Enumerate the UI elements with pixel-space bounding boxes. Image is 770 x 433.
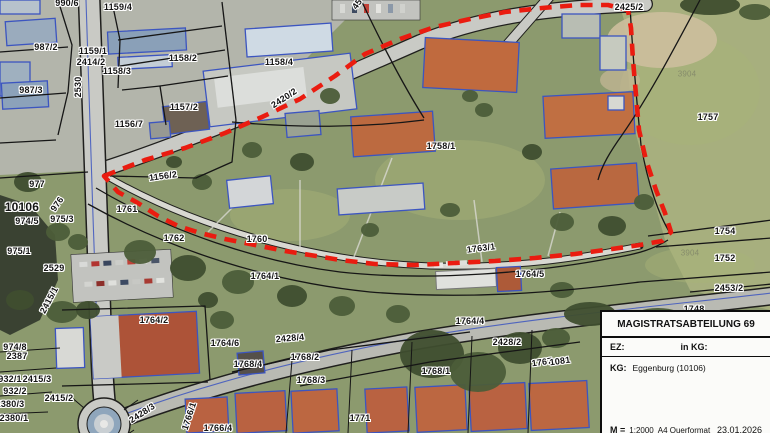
- kg-label: KG:: [610, 363, 627, 373]
- ez-label: EZ:: [610, 342, 625, 352]
- info-box: MAGISTRATSABTEILUNG 69 EZ: in KG: KG:Egg…: [600, 310, 770, 433]
- format-label: A4 Querformat: [658, 426, 710, 433]
- kg-value: Eggenburg (10106): [633, 363, 706, 373]
- scale-row: M = 1:2000 A4 Querformat 23.01.2026: [602, 423, 770, 433]
- scale-value: 1:2000: [629, 426, 653, 433]
- map-viewport: 990/61159/4987/21159/12414/21158/21158/3…: [0, 0, 770, 433]
- kg-row: KG:Eggenburg (10106): [602, 357, 770, 379]
- info-box-title: MAGISTRATSABTEILUNG 69: [602, 312, 770, 338]
- ez-row: EZ: in KG:: [602, 338, 770, 357]
- date-label: 23.01.2026: [717, 425, 762, 433]
- scale-label: M =: [610, 425, 625, 433]
- in-kg-label: in KG:: [681, 342, 708, 352]
